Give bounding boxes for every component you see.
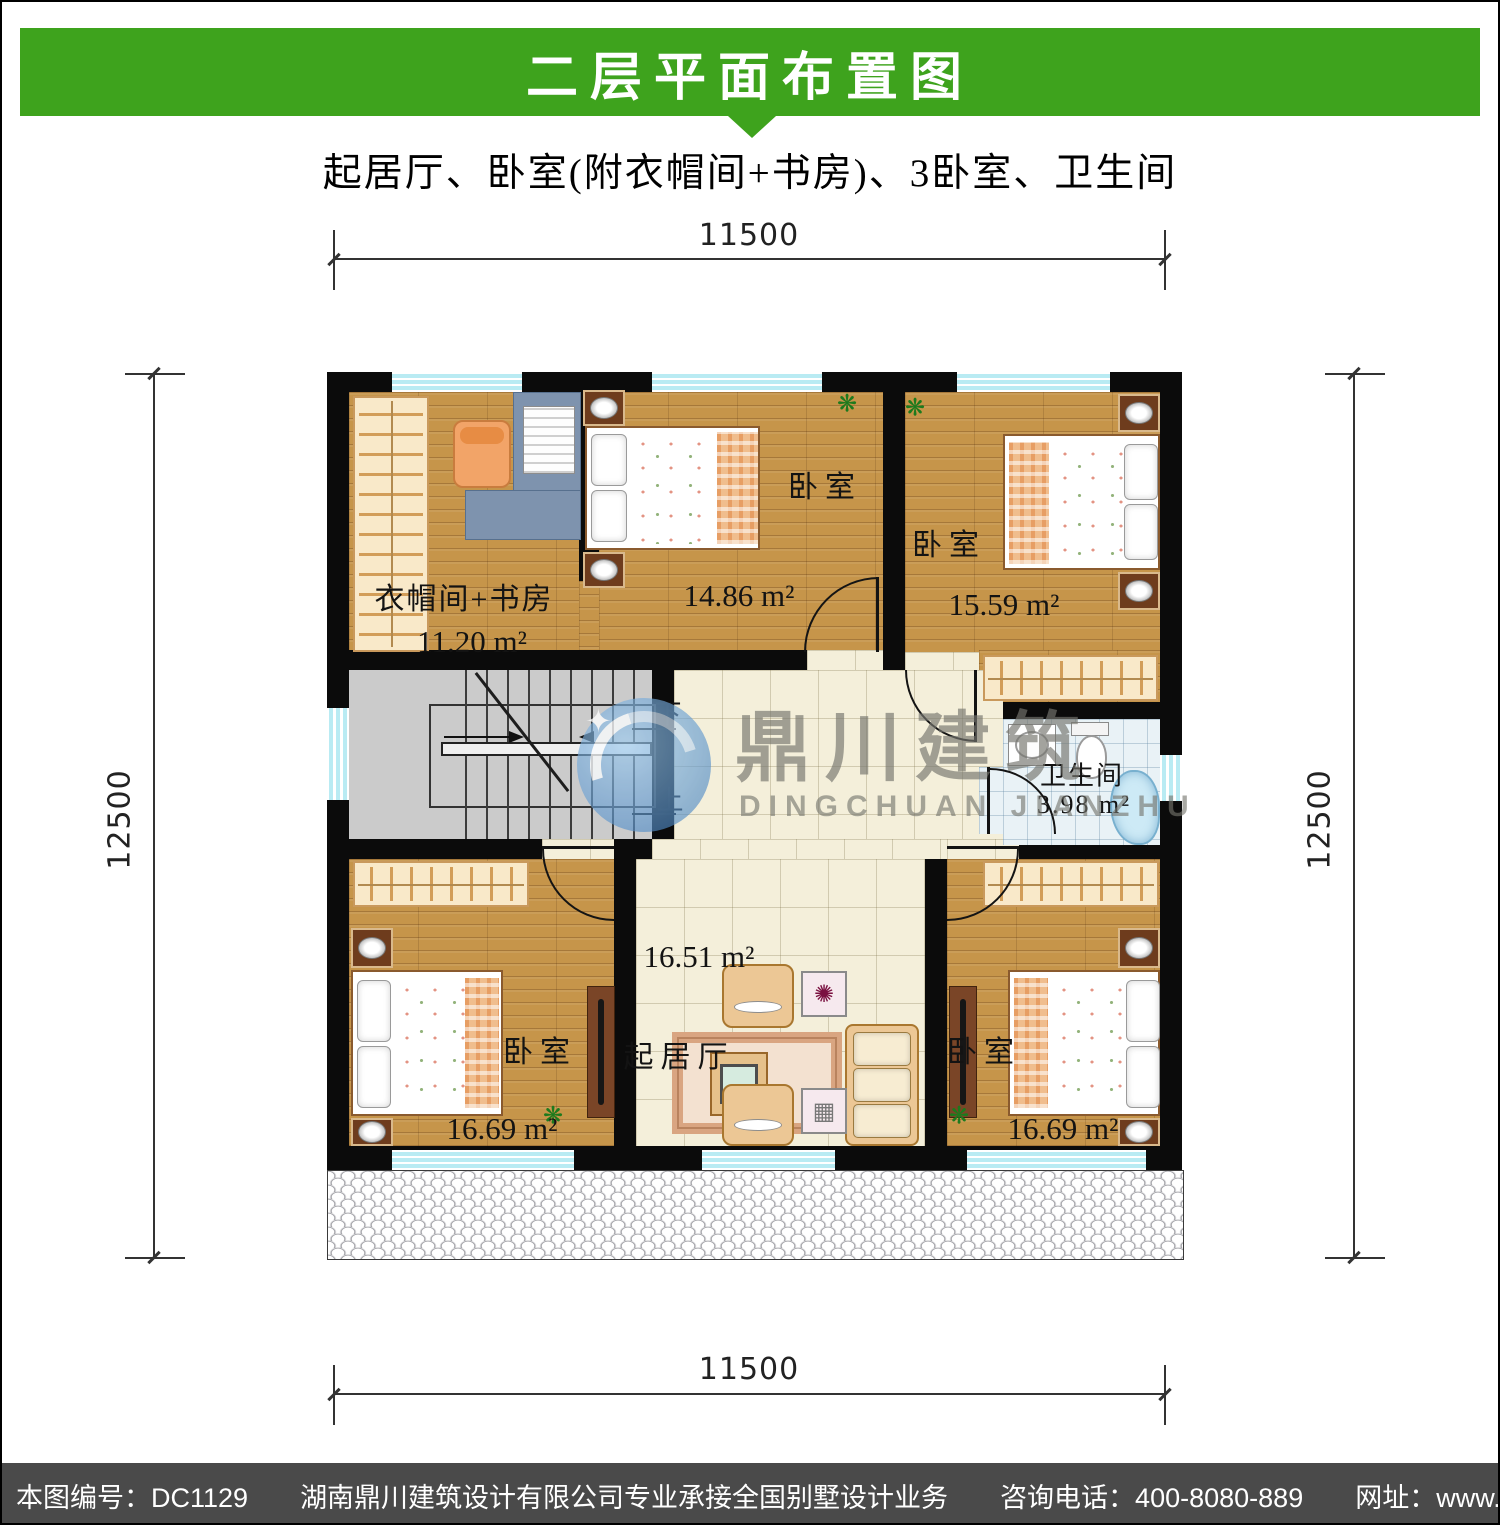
label-cloakroom: 衣帽间+书房 [375, 574, 554, 618]
flower-decor-icon: ✺ [801, 971, 847, 1017]
header-pointer-triangle [728, 116, 776, 138]
label-living-room: 起居厅 [624, 1032, 735, 1076]
area-bedroom-top-middle: 14.86 m² [684, 578, 795, 614]
sofa-cushion [853, 1032, 911, 1066]
nightstand [1118, 394, 1160, 432]
nightstand [1118, 572, 1160, 610]
window-left-stairs [327, 708, 349, 800]
footer-website: 网址：www.bstzcs.com [1355, 1476, 1500, 1515]
footer-company: 湖南鼎川建筑设计有限公司专业承接全国别墅设计业务 [300, 1476, 948, 1515]
dimension-right-value: 12500 [1303, 760, 1338, 880]
footer-drawing-no: 本图编号：DC1129 [16, 1476, 248, 1515]
dimension-bottom-value: 11500 [649, 1352, 849, 1387]
door-gap-bedroom-top-right [905, 652, 979, 670]
footer-bar: 本图编号：DC1129 湖南鼎川建筑设计有限公司专业承接全国别墅设计业务 咨询电… [2, 1463, 1498, 1525]
bed-top-middle [585, 426, 760, 550]
toilet-tank-icon [1071, 722, 1109, 736]
window-right-bathroom [1160, 755, 1182, 801]
wardrobe-rail [988, 884, 1154, 886]
window-bottom-1 [392, 1150, 574, 1170]
wardrobe-rail [988, 678, 1153, 680]
page-title: 二层平面布置图 [526, 35, 974, 110]
window-top-1 [392, 372, 522, 392]
door-gap-bedroom-top-middle [807, 650, 883, 670]
footer-phone: 咨询电话：400-8080-889 [1000, 1476, 1303, 1515]
plant-icon: ❋ [905, 394, 925, 423]
plant-icon: ❋ [949, 1102, 969, 1131]
wardrobe-bottom-left [353, 861, 529, 907]
label-bedroom-bottom-left: 卧室 [503, 1027, 577, 1071]
pillow [591, 434, 627, 486]
tv-cabinet [587, 986, 615, 1118]
appliance-icon: ▦ [801, 1088, 847, 1134]
dimension-bottom-line [334, 1393, 1165, 1395]
wardrobe-rail [358, 884, 524, 886]
roof-tile-strip [327, 1170, 1184, 1260]
area-bedroom-bottom-left: 16.69 m² [447, 1111, 558, 1147]
desk-chair [453, 420, 511, 488]
page-subtitle: 起居厅、卧室(附衣帽间+书房)、3卧室、卫生间 [2, 142, 1498, 198]
bed-blanket [629, 432, 717, 544]
nightstand [351, 928, 393, 968]
nightstand [351, 1118, 393, 1146]
window-bottom-2 [702, 1150, 835, 1170]
stair-railing [441, 742, 652, 756]
cloakroom-bedroom-opening [579, 581, 599, 650]
dimension-left-value: 12500 [103, 760, 138, 880]
sofa-cushion [853, 1068, 911, 1102]
label-bedroom-top-right: 卧室 [912, 520, 986, 564]
pillow [357, 980, 391, 1042]
pillow [591, 490, 627, 542]
label-bedroom-top-middle: 卧室 [788, 462, 862, 506]
bed-plaid-band [465, 978, 499, 1108]
bed-blanket [1050, 978, 1122, 1108]
nightstand [1118, 928, 1160, 968]
nightstand [1118, 1118, 1160, 1146]
stair-up-label: 上 [657, 779, 684, 818]
area-bedroom-bottom-right: 16.69 m² [1008, 1111, 1119, 1147]
nightstand [583, 552, 625, 588]
stair-down-label: 下 [655, 693, 682, 732]
pillow [1126, 1046, 1160, 1108]
pillow [357, 1046, 391, 1108]
computer-icon [523, 406, 575, 474]
stair-arrow-left-icon [579, 731, 594, 743]
floor-plan-page: 二层平面布置图 起居厅、卧室(附衣帽间+书房)、3卧室、卫生间 11500 11… [0, 0, 1500, 1525]
bed-blanket [393, 978, 465, 1108]
armchair [722, 1084, 794, 1146]
header-bar: 二层平面布置图 [20, 28, 1480, 116]
window-top-2 [652, 372, 822, 392]
bed-bottom-left [351, 970, 503, 1116]
dimension-top-line [334, 258, 1165, 260]
sofa [845, 1024, 919, 1146]
area-hallway: 16.51 m² [644, 939, 755, 975]
wardrobe-top-right [983, 655, 1158, 701]
dimension-left-line [153, 374, 155, 1259]
desk-return [465, 490, 581, 540]
stair-arrow-line [444, 736, 512, 738]
label-bathroom: 卫生间 [1040, 756, 1124, 793]
pillow [1124, 504, 1158, 560]
staircase [349, 670, 652, 839]
bed-bottom-right [1008, 970, 1160, 1116]
nightstand [583, 390, 625, 426]
bed-plaid-band [717, 432, 758, 544]
label-bedroom-bottom-right: 卧室 [947, 1027, 1021, 1071]
pillow [1126, 980, 1160, 1042]
floor-plan: 下 上 [327, 372, 1182, 1170]
area-cloakroom: 11.20 m² [417, 624, 527, 660]
area-bedroom-top-right: 15.59 m² [949, 587, 1060, 623]
bed-plaid-band [1009, 442, 1049, 564]
dimension-right-line [1353, 374, 1355, 1259]
window-top-3 [957, 372, 1110, 392]
stair-down-line [632, 728, 676, 730]
dimension-top-value: 11500 [649, 218, 849, 253]
bed-blanket [1051, 442, 1123, 564]
pillow [1124, 444, 1158, 500]
window-bottom-3 [967, 1150, 1146, 1170]
area-bathroom: 3.98 m² [1037, 790, 1131, 820]
stair-up-line [632, 813, 676, 815]
sofa-cushion [853, 1104, 911, 1138]
bed-top-right [1003, 434, 1160, 570]
plant-icon: ❋ [837, 390, 857, 419]
